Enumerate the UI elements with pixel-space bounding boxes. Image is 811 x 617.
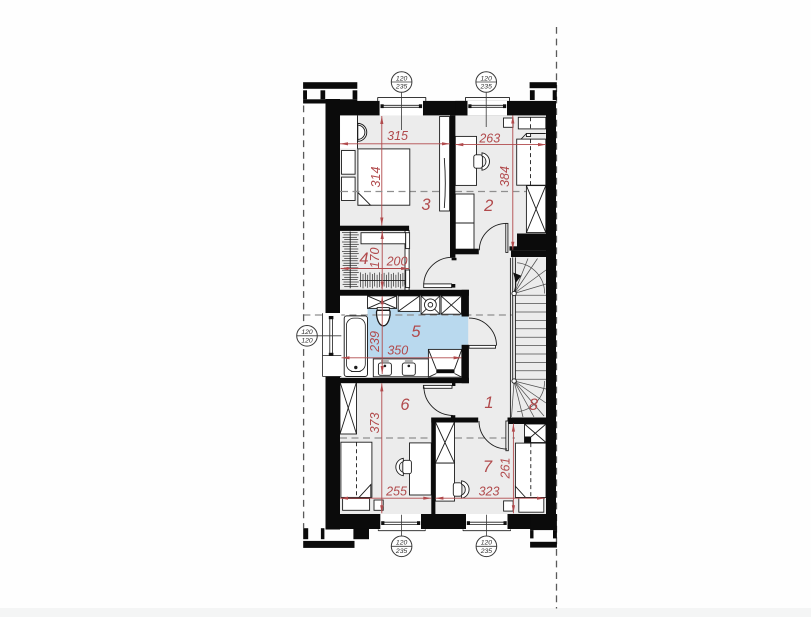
svg-text:4: 4 — [359, 250, 368, 268]
svg-text:120: 120 — [481, 75, 493, 82]
svg-text:2: 2 — [483, 197, 493, 215]
svg-text:120: 120 — [481, 540, 493, 547]
svg-text:350: 350 — [387, 344, 408, 358]
svg-text:5: 5 — [411, 323, 421, 341]
svg-text:315: 315 — [387, 129, 408, 143]
svg-text:235: 235 — [395, 84, 408, 91]
svg-text:200: 200 — [386, 255, 408, 269]
svg-text:3: 3 — [421, 196, 431, 214]
svg-text:235: 235 — [395, 548, 408, 555]
svg-text:120: 120 — [396, 75, 408, 82]
svg-text:8: 8 — [529, 396, 539, 414]
svg-text:261: 261 — [499, 458, 513, 480]
svg-text:1: 1 — [484, 394, 493, 412]
svg-text:120: 120 — [396, 540, 408, 547]
svg-text:263: 263 — [478, 131, 500, 145]
svg-text:170: 170 — [368, 248, 382, 269]
svg-text:255: 255 — [385, 484, 407, 498]
svg-text:120: 120 — [301, 337, 313, 344]
svg-text:323: 323 — [479, 484, 500, 498]
svg-text:6: 6 — [400, 396, 410, 414]
svg-text:314: 314 — [369, 167, 383, 188]
svg-text:120: 120 — [301, 329, 313, 336]
svg-text:235: 235 — [480, 548, 493, 555]
svg-text:235: 235 — [480, 84, 493, 91]
svg-text:384: 384 — [498, 166, 512, 187]
svg-text:239: 239 — [368, 331, 382, 353]
svg-text:373: 373 — [368, 413, 382, 434]
svg-text:7: 7 — [483, 458, 493, 476]
